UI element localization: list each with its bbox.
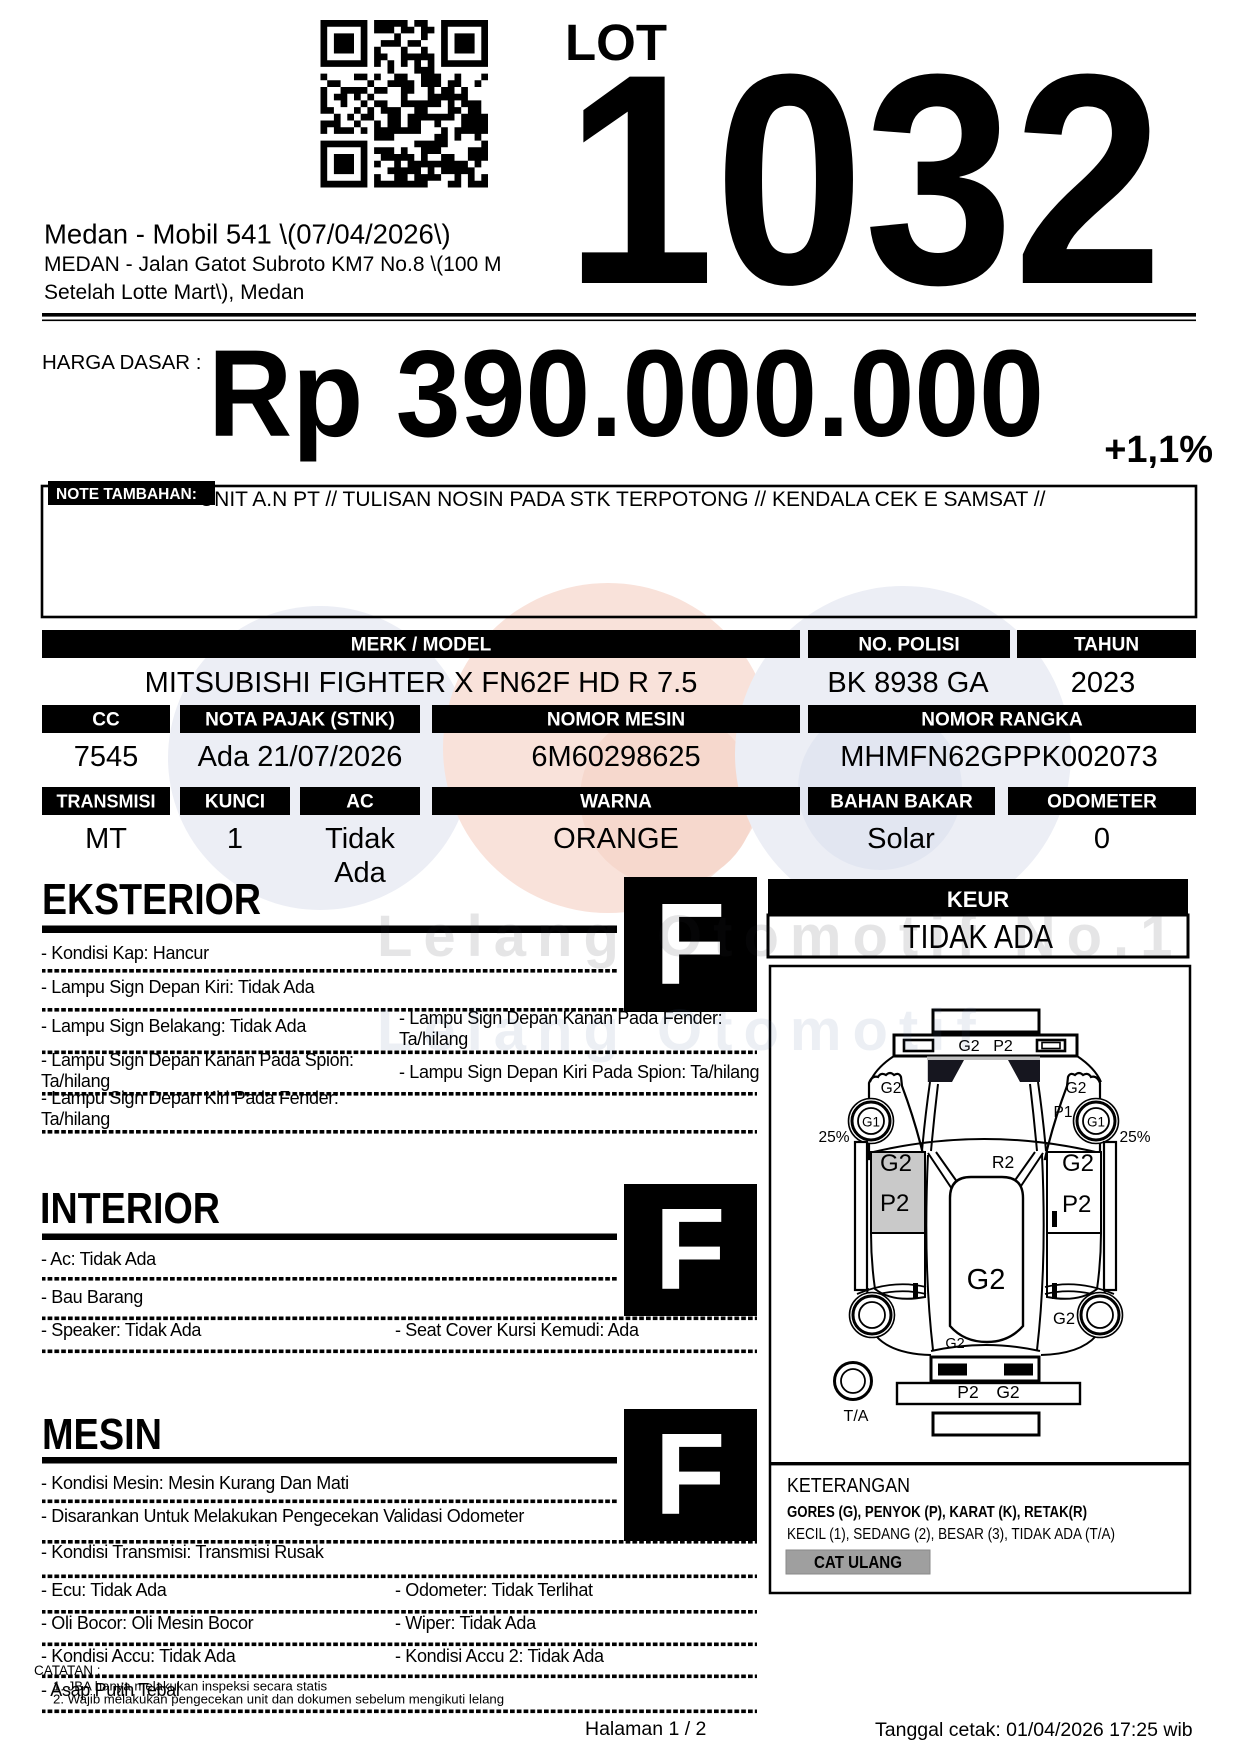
svg-text:MHMFN62GPPK002073: MHMFN62GPPK002073 (840, 741, 1158, 773)
svg-text:G2: G2 (967, 1264, 1006, 1296)
svg-text:Ta/hilang: Ta/hilang (41, 1109, 110, 1129)
svg-text:7545: 7545 (74, 741, 139, 773)
svg-text:R2: R2 (992, 1152, 1014, 1172)
svg-text:CAT ULANG: CAT ULANG (814, 1552, 902, 1572)
svg-text:MITSUBISHI FIGHTER X FN62F HD: MITSUBISHI FIGHTER X FN62F HD R 7.5 (145, 667, 698, 699)
svg-text:- Lampu Sign Depan Kiri Pada F: - Lampu Sign Depan Kiri Pada Fender: (41, 1088, 339, 1108)
svg-text:P1: P1 (1054, 1104, 1073, 1121)
svg-text:MT: MT (85, 823, 127, 855)
svg-text:NOTA PAJAK (STNK): NOTA PAJAK (STNK) (205, 710, 395, 731)
svg-text:G2: G2 (945, 1336, 964, 1352)
svg-text:MESIN: MESIN (42, 1410, 162, 1459)
svg-text:NOMOR MESIN: NOMOR MESIN (547, 710, 685, 731)
svg-text:Ada: Ada (334, 857, 386, 889)
svg-text:- Speaker: Tidak Ada: - Speaker: Tidak Ada (41, 1320, 202, 1340)
svg-text:Solar: Solar (867, 823, 935, 855)
svg-text:Lelang Otomotif: Lelang Otomotif (377, 998, 987, 1063)
svg-text:25%: 25% (1119, 1129, 1150, 1146)
svg-text:P2: P2 (880, 1190, 909, 1217)
svg-text:- Oli Bocor: Oli Mesin Bocor: - Oli Bocor: Oli Mesin Bocor (41, 1613, 254, 1633)
svg-text:- Kondisi Kap: Hancur: - Kondisi Kap: Hancur (41, 943, 209, 963)
svg-text:BK 8938 GA: BK 8938 GA (827, 667, 989, 699)
svg-text:- Ecu: Tidak Ada: - Ecu: Tidak Ada (41, 1580, 168, 1600)
svg-text:G1: G1 (1087, 1115, 1105, 1130)
svg-text:G2: G2 (880, 1150, 912, 1177)
svg-text:NOMOR RANGKA: NOMOR RANGKA (921, 710, 1083, 731)
svg-text:HARGA DASAR :: HARGA DASAR : (42, 351, 202, 374)
svg-text:NOTE TAMBAHAN:: NOTE TAMBAHAN: (56, 486, 197, 503)
svg-text:GORES (G), PENYOK (P), KARAT (: GORES (G), PENYOK (P), KARAT (K), RETAK(… (787, 1504, 1087, 1521)
svg-text:- Odometer: Tidak Terlihat: - Odometer: Tidak Terlihat (395, 1580, 593, 1600)
svg-text:Tanggal cetak: 01/04/2026 17:2: Tanggal cetak: 01/04/2026 17:25 wib (875, 1719, 1193, 1741)
svg-text:TRANSMISI: TRANSMISI (57, 792, 156, 812)
svg-text:- Kondisi Accu 2: Tidak Ada: - Kondisi Accu 2: Tidak Ada (395, 1646, 605, 1666)
svg-text:- Bau Barang: - Bau Barang (41, 1287, 143, 1307)
svg-text:P2: P2 (993, 1038, 1013, 1055)
svg-text:- Wiper: Tidak Ada: - Wiper: Tidak Ada (395, 1613, 537, 1633)
svg-text:6M60298625: 6M60298625 (531, 741, 700, 773)
svg-text:KETERANGAN: KETERANGAN (787, 1475, 910, 1497)
svg-text:Halaman 1 / 2: Halaman 1 / 2 (585, 1718, 706, 1740)
svg-text:NO. POLISI: NO. POLISI (858, 635, 959, 656)
svg-text:INTERIOR: INTERIOR (40, 1184, 220, 1233)
svg-text:Tidak: Tidak (325, 823, 395, 855)
svg-text:+1,1%: +1,1% (1104, 429, 1213, 471)
svg-text:2023: 2023 (1071, 667, 1136, 699)
svg-text:G2: G2 (1062, 1150, 1094, 1177)
svg-text:- Lampu Sign Depan Kiri: Tidak: - Lampu Sign Depan Kiri: Tidak Ada (41, 977, 316, 997)
svg-text:BAHAN BAKAR: BAHAN BAKAR (830, 792, 973, 813)
svg-text:0: 0 (1094, 823, 1110, 855)
svg-text:F: F (655, 1409, 726, 1539)
svg-text:- Lampu Sign Depan Kanan Pada: - Lampu Sign Depan Kanan Pada Spion: (41, 1050, 354, 1070)
svg-text:CC: CC (92, 710, 120, 731)
svg-text:AC: AC (346, 792, 374, 813)
svg-text:CATATAN :: CATATAN : (34, 1663, 101, 1678)
svg-text:- Kondisi Mesin: Mesin Kurang: - Kondisi Mesin: Mesin Kurang Dan Mati (41, 1473, 349, 1493)
svg-text:Ada 21/07/2026: Ada 21/07/2026 (198, 741, 403, 773)
svg-text:G2: G2 (881, 1080, 902, 1097)
svg-text:1032: 1032 (565, 11, 1163, 347)
svg-text:ORANGE: ORANGE (553, 823, 679, 855)
svg-text:TAHUN: TAHUN (1074, 635, 1139, 656)
svg-text:G2: G2 (996, 1382, 1019, 1402)
svg-text:KUNCI: KUNCI (205, 792, 265, 813)
svg-text:P2: P2 (1062, 1191, 1091, 1218)
svg-text:F: F (655, 1184, 726, 1314)
svg-text:ODOMETER: ODOMETER (1047, 792, 1157, 813)
svg-text:Lelang Otomotif No.1: Lelang Otomotif No.1 (377, 904, 1183, 969)
svg-text:- Lampu Sign Depan Kiri Pada S: - Lampu Sign Depan Kiri Pada Spion: Ta/h… (399, 1062, 759, 1082)
svg-text:- Ac: Tidak Ada: - Ac: Tidak Ada (41, 1249, 157, 1269)
svg-text:KECIL (1), SEDANG (2), BESAR (: KECIL (1), SEDANG (2), BESAR (3), TIDAK … (787, 1526, 1115, 1543)
svg-text:MEDAN - Jalan Gatot Subroto KM: MEDAN - Jalan Gatot Subroto KM7 No.8 \(1… (44, 253, 502, 276)
svg-text:25%: 25% (818, 1129, 849, 1146)
svg-text:- Disarankan Untuk Melakukan P: - Disarankan Untuk Melakukan Pengecekan … (41, 1506, 524, 1526)
svg-text:Setelah Lotte Mart\), Medan: Setelah Lotte Mart\), Medan (44, 281, 304, 304)
svg-text:1: 1 (227, 823, 243, 855)
svg-text:2. Wajib melakukan pengecekan: 2. Wajib melakukan pengecekan unit dan d… (53, 1692, 504, 1707)
svg-text:- Kondisi Transmisi: Transmisi: - Kondisi Transmisi: Transmisi Rusak (41, 1542, 325, 1562)
svg-text:EKSTERIOR: EKSTERIOR (42, 875, 261, 924)
svg-text:WARNA: WARNA (580, 792, 652, 813)
svg-text:MERK / MODEL: MERK / MODEL (351, 635, 492, 656)
svg-text:G2: G2 (1053, 1310, 1075, 1328)
svg-text:UNIT A.N PT // TULISAN NOSIN P: UNIT A.N PT // TULISAN NOSIN PADA STK TE… (199, 488, 1046, 511)
svg-text:- Seat Cover Kursi Kemudi: Ada: - Seat Cover Kursi Kemudi: Ada (395, 1320, 640, 1340)
svg-text:- Lampu Sign Belakang: Tidak A: - Lampu Sign Belakang: Tidak Ada (41, 1016, 307, 1036)
svg-text:T/A: T/A (844, 1408, 869, 1425)
svg-text:G2: G2 (1066, 1080, 1087, 1097)
svg-text:Rp 390.000.000: Rp 390.000.000 (208, 326, 1044, 463)
svg-text:G1: G1 (862, 1115, 880, 1130)
svg-text:P2: P2 (957, 1382, 978, 1402)
svg-text:Medan - Mobil 541 \(07/04/2026: Medan - Mobil 541 \(07/04/2026\) (44, 219, 451, 250)
